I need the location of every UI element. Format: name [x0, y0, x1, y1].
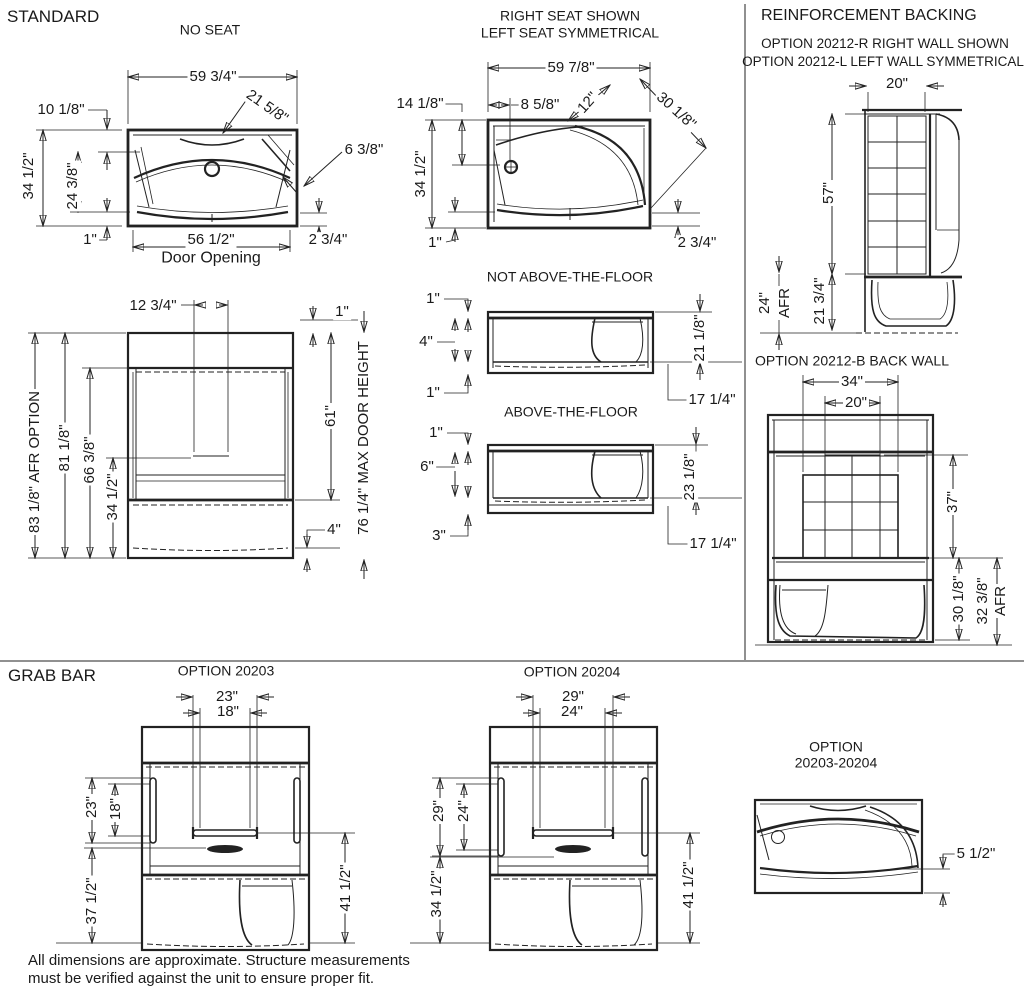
view-title-not-above-floor: NOT ABOVE-THE-FLOOR	[487, 270, 653, 285]
dim-no-seat-inner-depth: 24 3/8"	[65, 160, 81, 211]
dim-front-base: 4"	[325, 522, 343, 538]
dim-atf-lip-top: 1"	[427, 425, 445, 441]
dim-right-wall-height: 57"	[821, 180, 837, 206]
dim-20203-dish-height: 37 1/2"	[84, 875, 100, 926]
dim-20204-dish-height: 34 1/2"	[429, 868, 445, 919]
section-title-grab-bar: GRAB BAR	[8, 667, 96, 685]
dim-atf-rim: 23 1/8"	[682, 451, 698, 502]
label-back-wall-afr: AFR	[993, 584, 1009, 618]
dim-natf-lip-bottom: 1"	[424, 385, 442, 401]
dim-seat-plan-drain: 14 1/8"	[394, 96, 445, 112]
dim-no-seat-depth: 34 1/2"	[21, 150, 37, 201]
dim-20204-bar-height: 41 1/2"	[681, 859, 697, 910]
dim-back-wall-rim: 30 1/8"	[951, 573, 967, 624]
option-20203-drawing	[56, 695, 355, 950]
view-title-option-20204: OPTION 20204	[524, 665, 621, 680]
dim-20203-side-outer: 23"	[84, 794, 100, 820]
dim-20204-side-inner: 24"	[456, 798, 472, 824]
section-title-reinforcement: REINFORCEMENT BACKING	[761, 8, 977, 25]
dim-no-seat-door-opening: 56 1/2"	[185, 232, 236, 248]
reinforcement-subtitle-2: OPTION 20212-L LEFT WALL SYMMETRICAL	[742, 55, 1024, 69]
dim-front-lip: 1"	[333, 304, 351, 320]
standard-front-drawing	[28, 300, 364, 579]
dim-right-wall-width: 20"	[884, 76, 910, 92]
label-right-wall-afr: AFR	[777, 286, 793, 320]
dim-atf-seat: 17 1/4"	[687, 536, 738, 552]
dim-front-handle-height: 34 1/2"	[105, 471, 121, 522]
dim-no-seat-rim: 10 1/8"	[35, 102, 86, 118]
dim-20203-top-inner: 18"	[215, 704, 241, 720]
label-door-opening: Door Opening	[159, 251, 263, 268]
dim-20204-top-inner: 24"	[559, 704, 585, 720]
line-work	[0, 0, 1024, 1007]
dim-no-seat-corner: 6 3/8"	[343, 142, 386, 158]
no-seat-plan-drawing	[36, 70, 342, 252]
dim-front-overall: 81 1/8"	[57, 422, 73, 473]
dim-no-seat-lip: 1"	[81, 232, 99, 248]
view-title-above-floor: ABOVE-THE-FLOOR	[504, 405, 638, 420]
view-title-right-seat-2: LEFT SEAT SYMMETRICAL	[481, 26, 659, 41]
dim-back-wall-afr: 32 3/8"	[975, 575, 991, 626]
dim-combo-apron: 5 1/2"	[955, 846, 998, 862]
view-title-no-seat: NO SEAT	[180, 23, 240, 38]
view-title-option-combo-2: 20203-20204	[795, 756, 878, 771]
dim-seat-plan-lip: 1"	[426, 235, 444, 251]
dim-right-wall-afr: 24"	[757, 290, 773, 316]
dim-seat-plan-depth: 34 1/2"	[413, 148, 429, 199]
dim-no-seat-width: 59 3/4"	[187, 69, 238, 85]
dim-right-wall-rim: 21 3/4"	[812, 275, 828, 326]
dim-front-max-door: 76 1/4" MAX DOOR HEIGHT	[356, 339, 372, 537]
section-title-standard: STANDARD	[7, 8, 99, 26]
view-title-back-wall: OPTION 20212-B BACK WALL	[755, 354, 949, 369]
view-title-right-seat-1: RIGHT SEAT SHOWN	[500, 9, 640, 24]
option-combo-plan-drawing	[755, 800, 956, 907]
view-title-option-20203: OPTION 20203	[178, 664, 275, 679]
dim-front-walls: 66 3/8"	[82, 434, 98, 485]
dim-back-wall-inner-width: 20"	[843, 395, 869, 411]
dim-atf-bottom: 3"	[430, 528, 448, 544]
dim-20203-bar-height: 41 1/2"	[338, 862, 354, 913]
dim-back-wall-height: 37"	[945, 489, 961, 515]
dim-atf-base: 6"	[418, 459, 436, 475]
dim-seat-plan-width: 59 7/8"	[545, 60, 596, 76]
view-title-option-combo-1: OPTION	[809, 740, 863, 755]
dim-front-handle: 12 3/4"	[127, 298, 178, 314]
dim-seat-plan-drain-offset: 8 5/8"	[519, 97, 562, 113]
dim-seat-plan-apron: 2 3/4"	[676, 235, 719, 251]
dim-natf-base: 4"	[417, 334, 435, 350]
dim-natf-rim: 21 1/8"	[692, 312, 708, 363]
footnote-line-1: All dimensions are approximate. Structur…	[28, 953, 410, 969]
dim-front-door: 61"	[323, 403, 339, 429]
reinforcement-subtitle-1: OPTION 20212-R RIGHT WALL SHOWN	[761, 37, 1009, 51]
dim-no-seat-apron: 2 3/4"	[307, 232, 350, 248]
dim-front-afr: 83 1/8" AFR OPTION	[27, 389, 43, 535]
dim-natf-lip-top: 1"	[424, 291, 442, 307]
option-20204-drawing	[410, 695, 700, 950]
dim-20204-side-outer: 29"	[431, 798, 447, 824]
dim-back-wall-width: 34"	[839, 374, 865, 390]
footnote-line-2: must be verified against the unit to ens…	[28, 971, 374, 987]
dim-natf-seat: 17 1/4"	[686, 392, 737, 408]
dim-20203-side-inner: 18"	[108, 796, 124, 822]
spec-sheet: STANDARD NO SEAT RIGHT SEAT SHOWN LEFT S…	[0, 0, 1024, 1007]
